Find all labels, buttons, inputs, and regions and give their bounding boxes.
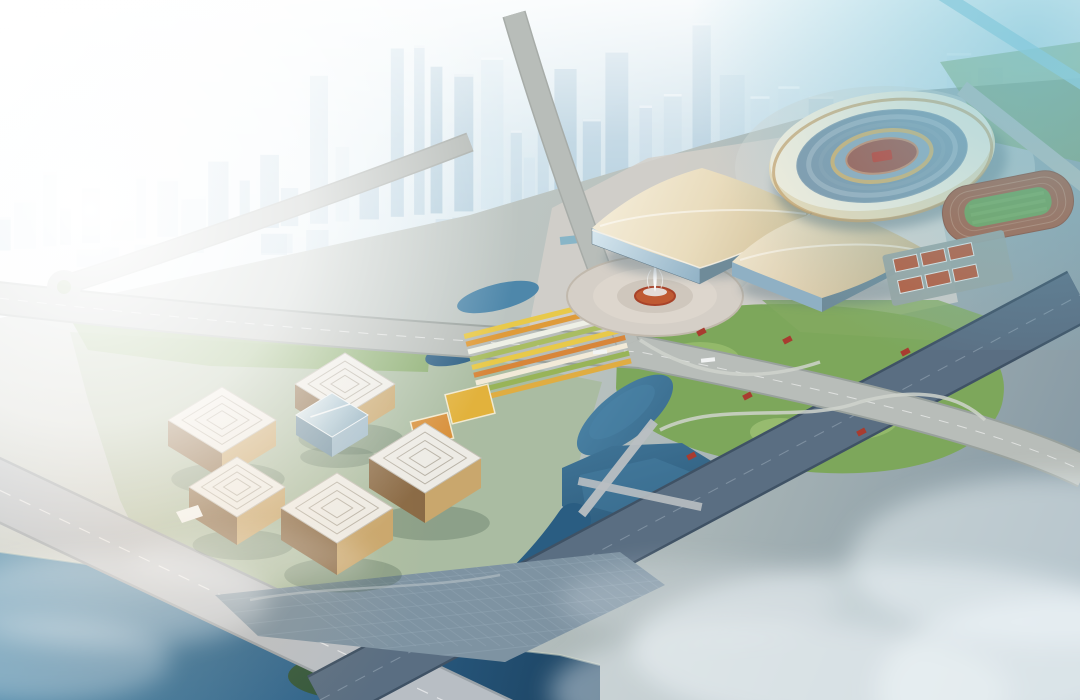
cyan-haze xyxy=(600,0,1080,350)
lake-mist xyxy=(130,530,370,590)
fog-puff xyxy=(560,560,840,640)
aerial-site-rendering xyxy=(0,0,1080,700)
atmosphere xyxy=(0,0,1080,700)
rendering-canvas xyxy=(0,0,1080,700)
